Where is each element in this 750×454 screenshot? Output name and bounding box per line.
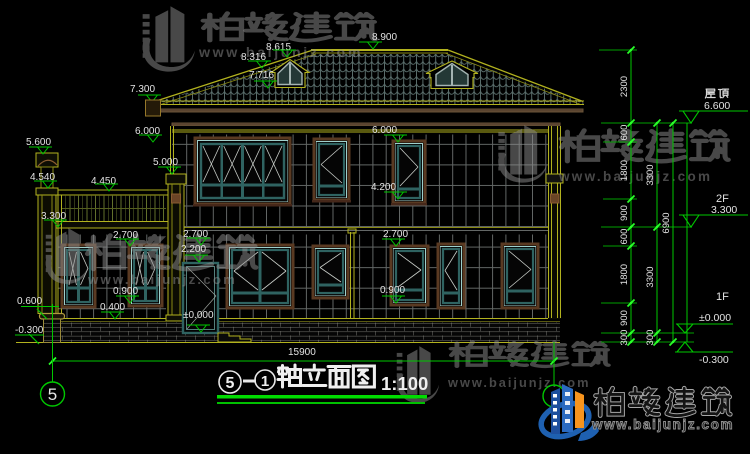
svg-text:4.450: 4.450 <box>91 176 116 187</box>
svg-text:2300: 2300 <box>619 76 630 97</box>
svg-text:300: 300 <box>645 330 656 346</box>
svg-text:1F: 1F <box>716 291 729 303</box>
svg-text:1800: 1800 <box>619 160 630 181</box>
svg-text:0.600: 0.600 <box>17 296 42 307</box>
svg-text:6.000: 6.000 <box>372 125 397 136</box>
svg-text:www.baijunjz.com: www.baijunjz.com <box>591 417 734 432</box>
svg-text:8.900: 8.900 <box>372 32 397 43</box>
svg-text:0.400: 0.400 <box>100 302 125 313</box>
svg-text:5: 5 <box>48 385 57 404</box>
svg-text:7.716: 7.716 <box>249 70 274 81</box>
svg-text:1: 1 <box>261 373 269 390</box>
svg-text:2.700: 2.700 <box>383 229 408 240</box>
svg-text:6900: 6900 <box>661 212 672 233</box>
svg-text:8.615: 8.615 <box>266 42 291 53</box>
svg-text:5: 5 <box>226 375 235 392</box>
svg-text:1800: 1800 <box>619 264 630 285</box>
svg-text:0.900: 0.900 <box>113 286 138 297</box>
svg-text:5.000: 5.000 <box>153 157 178 168</box>
svg-text:600: 600 <box>619 229 630 245</box>
svg-text:6.600: 6.600 <box>704 100 730 112</box>
svg-text:2.200: 2.200 <box>181 244 206 255</box>
svg-text:4.200: 4.200 <box>371 182 396 193</box>
svg-text:±0.000: ±0.000 <box>699 312 731 324</box>
svg-text:0.900: 0.900 <box>380 285 405 296</box>
svg-text:1:100: 1:100 <box>381 373 428 394</box>
svg-text:5.600: 5.600 <box>26 137 51 148</box>
svg-text:600: 600 <box>619 125 630 141</box>
svg-text:www.baijunjz.com: www.baijunjz.com <box>87 272 237 287</box>
svg-text:3300: 3300 <box>645 266 656 287</box>
svg-text:±0.000: ±0.000 <box>183 310 214 321</box>
svg-text:3300: 3300 <box>645 164 656 185</box>
svg-text:900: 900 <box>619 205 630 221</box>
svg-text:-0.300: -0.300 <box>699 354 729 366</box>
svg-text:7.300: 7.300 <box>130 84 155 95</box>
svg-text:900: 900 <box>619 310 630 326</box>
svg-text:15900: 15900 <box>288 347 316 358</box>
svg-text:www.baijunjz.com: www.baijunjz.com <box>558 169 712 184</box>
svg-text:3.300: 3.300 <box>711 204 737 216</box>
svg-text:300: 300 <box>619 330 630 346</box>
